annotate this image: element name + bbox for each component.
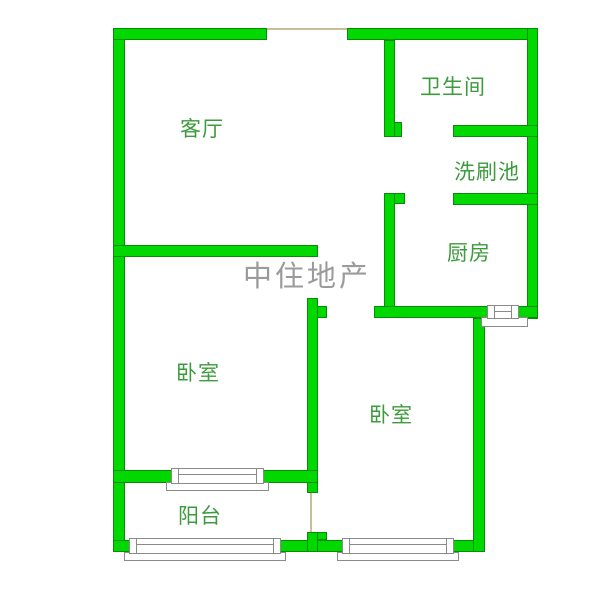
watermark-text: 中住地产 [243, 253, 371, 295]
wall-bathroom-wash-divider [453, 125, 538, 137]
room-label-balcony: 阳台 [178, 500, 222, 530]
wall-kitchen-left [384, 193, 395, 318]
kitchen-window-icon [487, 305, 519, 319]
wall-wash-kitchen-divider [453, 193, 538, 205]
wall-balcony-door-jamb [317, 532, 327, 540]
wall-bedrooms-divider [307, 298, 318, 493]
wall-kitchen-bottom-a [374, 306, 488, 318]
wall-bathroom-left-jamb [394, 122, 402, 137]
bedroom-balcony-window-icon [171, 468, 264, 484]
balcony-door-opening [310, 493, 312, 532]
wall-livingroom-bedroom-divider [113, 245, 318, 257]
room-label-wash-area: 洗刷池 [454, 156, 520, 186]
room-label-bedroom-left: 卧室 [176, 357, 220, 387]
floor-plan: 中住地产 客厅 卫生间 洗刷池 厨房 卧室 卧室 阳台 [0, 0, 600, 600]
entry-door-opening [267, 28, 347, 30]
wall-right-exterior [527, 28, 538, 319]
wall-kitchen-left-jamb [394, 193, 405, 204]
wall-bottom-segment-a [113, 540, 130, 552]
wall-bedroom-right-door-jamb [317, 306, 327, 318]
balcony-window-icon [129, 538, 281, 554]
wall-top-right [347, 28, 538, 40]
room-label-living-room: 客厅 [180, 113, 224, 143]
room-label-bathroom: 卫生间 [420, 71, 486, 101]
wall-bedroom-right-exterior [473, 318, 485, 552]
wall-top-left [113, 28, 267, 40]
room-label-kitchen: 厨房 [447, 237, 491, 267]
wall-balcony-top-a [113, 470, 172, 483]
wall-balcony-top-b [263, 470, 318, 483]
room-label-bedroom-right: 卧室 [369, 399, 413, 429]
bedroom-right-window-icon [342, 538, 454, 554]
